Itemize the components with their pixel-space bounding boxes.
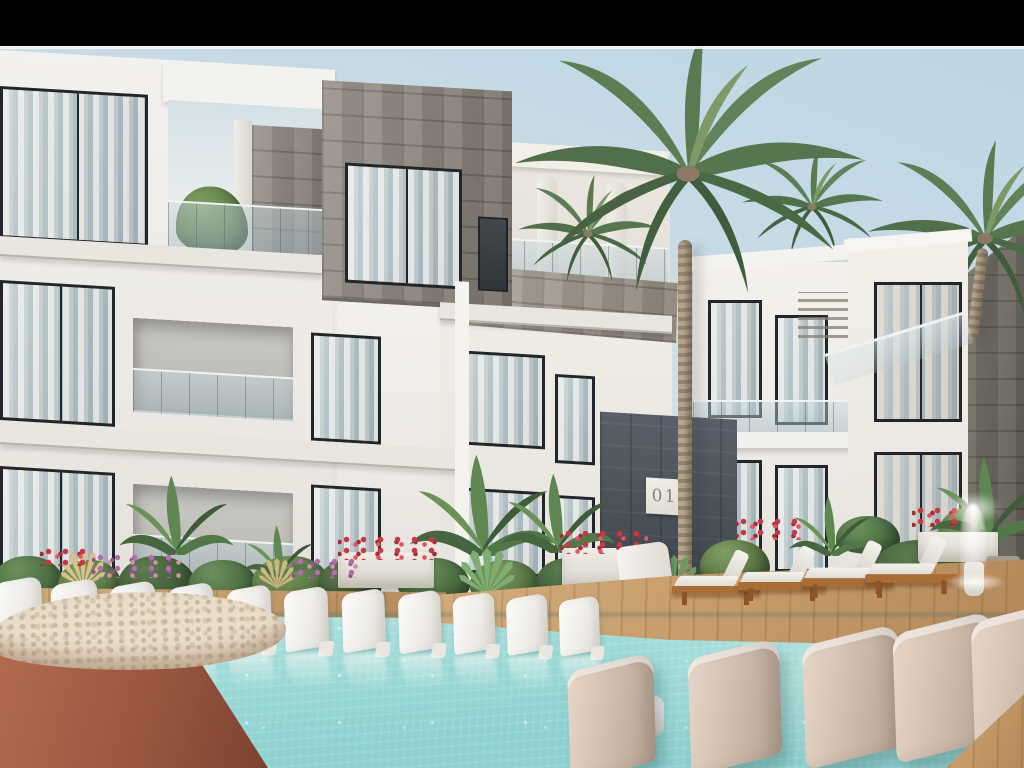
flower-bed-pink xyxy=(292,556,362,578)
window xyxy=(0,86,148,247)
letterbox-top xyxy=(0,0,1024,46)
window xyxy=(460,350,545,449)
flower-bed-red xyxy=(40,546,86,566)
window xyxy=(311,332,381,444)
window xyxy=(555,374,595,465)
foreground-lounger xyxy=(560,659,685,768)
horizon-highlight xyxy=(0,46,1024,49)
window xyxy=(0,280,115,427)
balcony-glass-railing xyxy=(133,368,293,422)
resort-render: 01 xyxy=(0,0,1024,768)
window xyxy=(345,162,462,289)
fountain-jet xyxy=(946,492,1004,600)
palm-tree-main xyxy=(503,19,873,319)
unit-number: 01 xyxy=(652,486,678,508)
flower-bed-pink xyxy=(92,552,182,578)
banana-plant xyxy=(118,470,235,555)
flower-bed-red xyxy=(735,516,805,540)
foreground-lounger xyxy=(680,645,813,768)
